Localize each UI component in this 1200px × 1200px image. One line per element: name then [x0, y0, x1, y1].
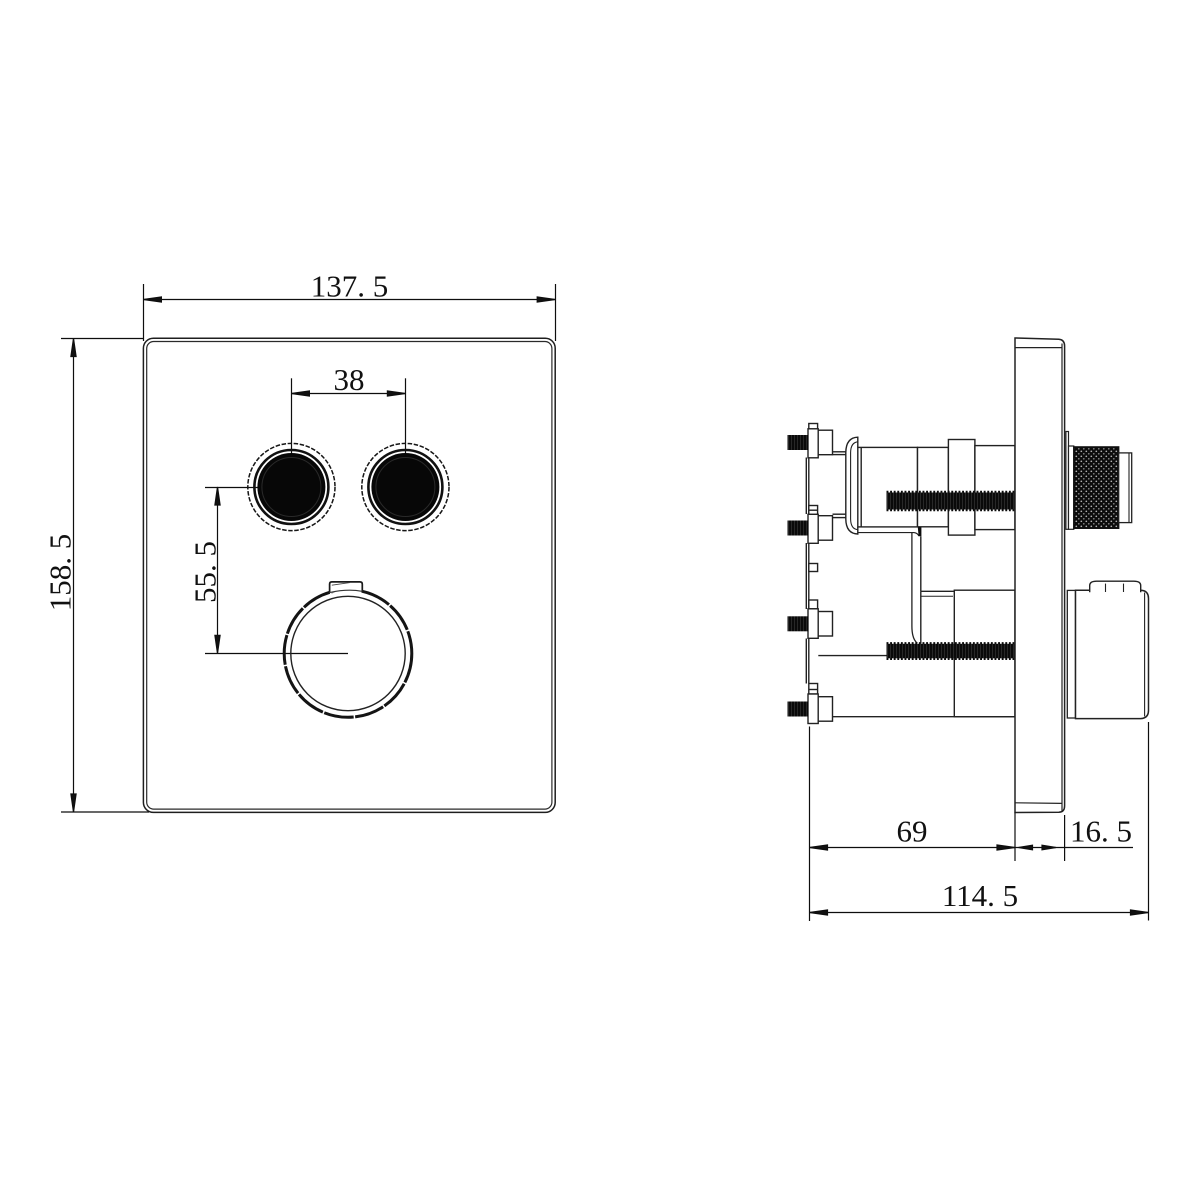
svg-text:137. 5: 137. 5 — [311, 269, 389, 304]
svg-text:16. 5: 16. 5 — [1070, 814, 1132, 849]
svg-text:38: 38 — [334, 362, 365, 397]
svg-text:114. 5: 114. 5 — [942, 878, 1018, 913]
svg-text:158. 5: 158. 5 — [43, 534, 78, 612]
svg-text:55. 5: 55. 5 — [188, 541, 223, 603]
svg-text:69: 69 — [897, 814, 928, 849]
